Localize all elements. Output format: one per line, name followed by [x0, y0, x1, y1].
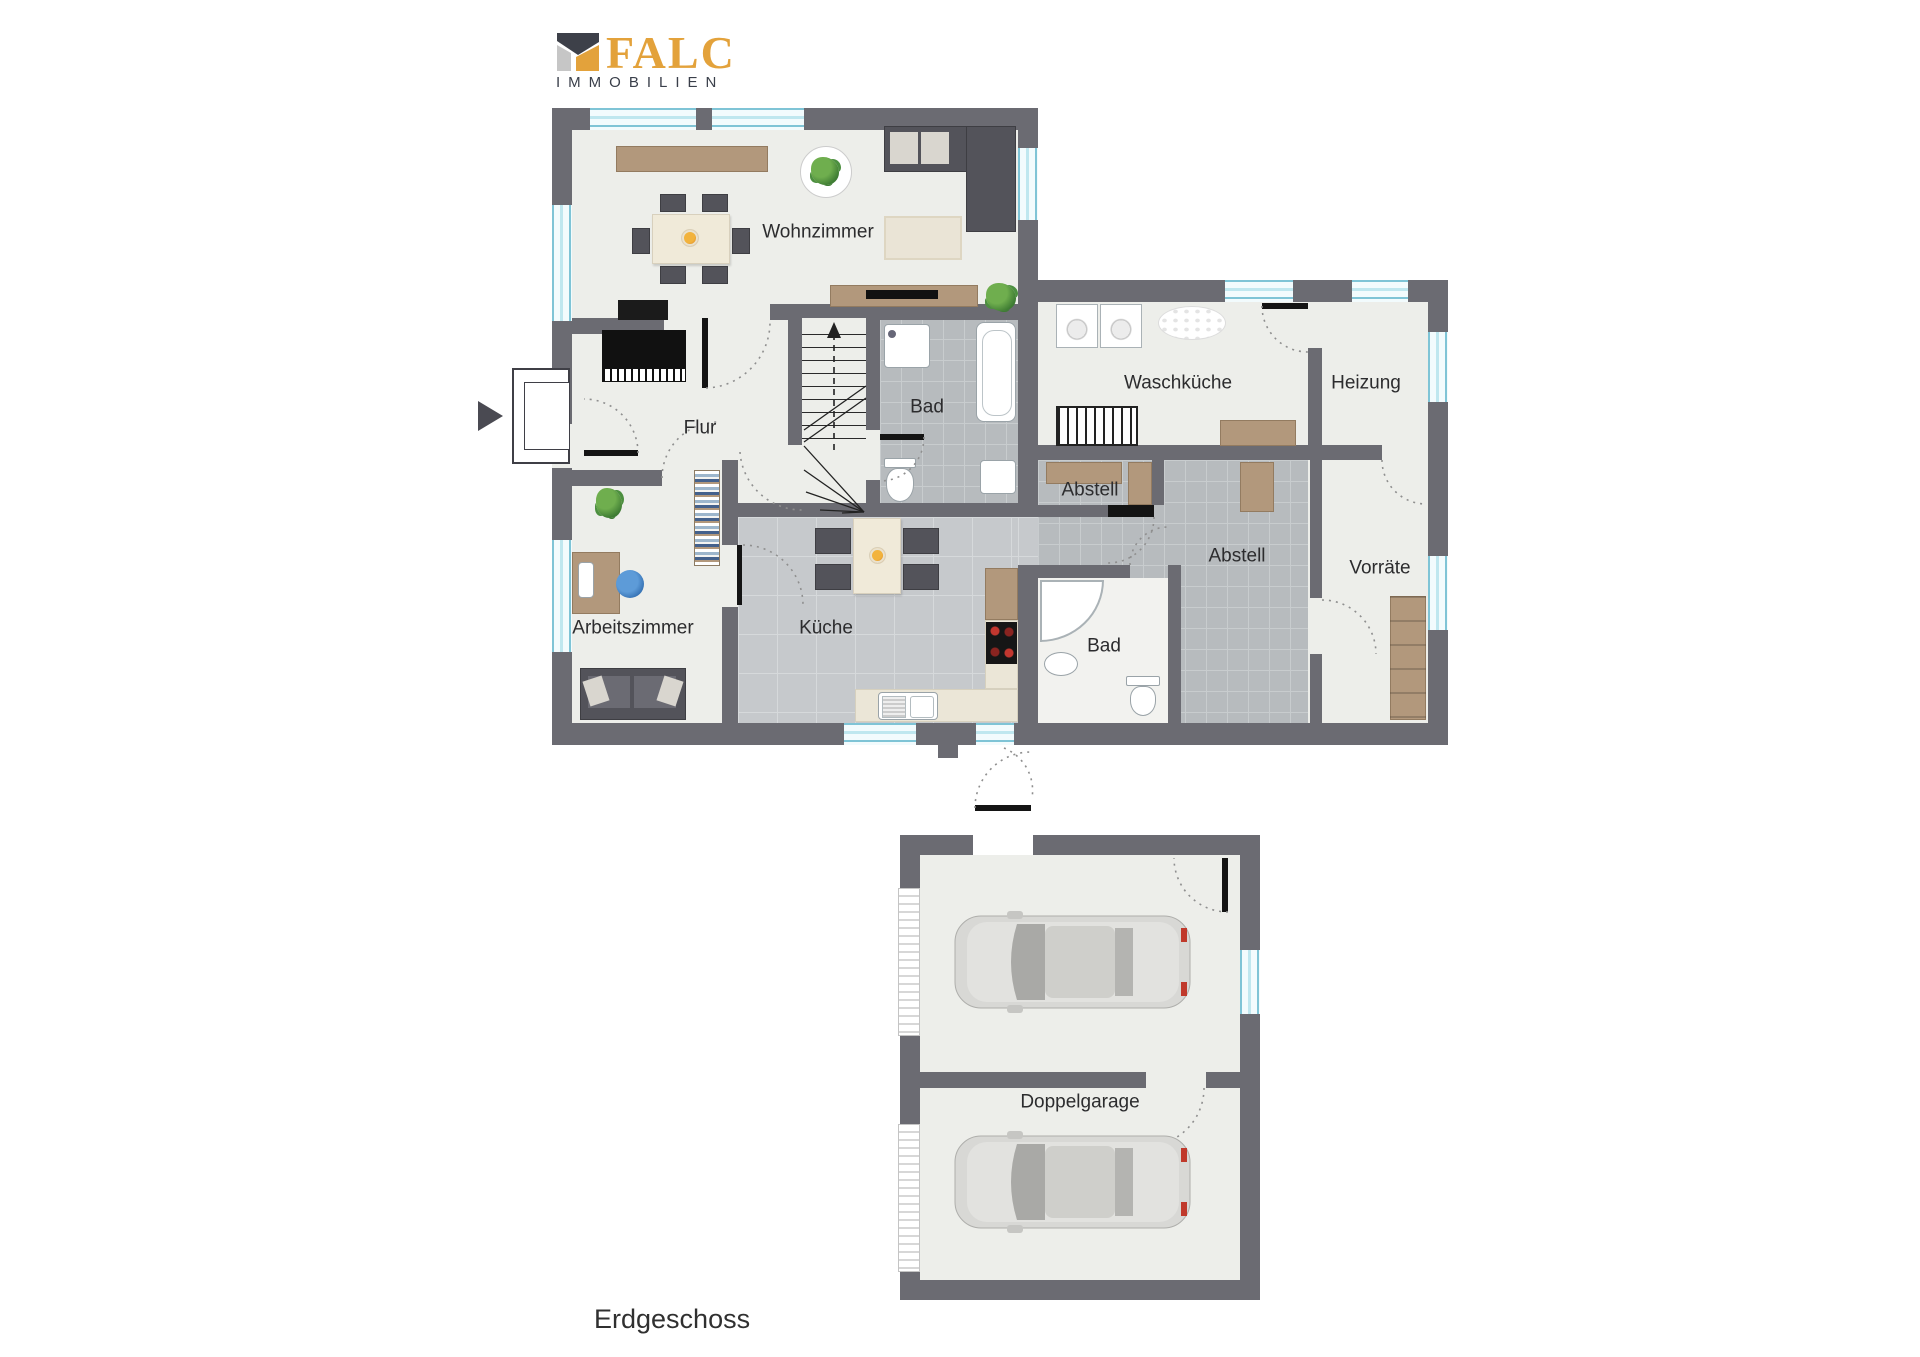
cabinet — [1240, 462, 1274, 512]
wall — [920, 1072, 1146, 1088]
storage-shelf — [1390, 596, 1426, 720]
garage-door — [898, 888, 920, 1036]
bookshelf — [694, 470, 720, 566]
office-chair — [616, 570, 644, 598]
entrance-porch-inner — [524, 382, 570, 450]
chair — [702, 266, 728, 284]
window — [1352, 280, 1408, 302]
window — [1428, 332, 1448, 402]
window — [1240, 950, 1260, 1014]
washbasin — [1044, 652, 1078, 676]
room-label-vorraete: Vorräte — [1349, 559, 1410, 578]
wall — [1308, 348, 1322, 445]
room-label-abstell-large: Abstell — [1208, 547, 1265, 566]
floor-plan-page: FALC IMMOBILIEN — [0, 0, 1920, 1357]
window — [590, 108, 696, 130]
wall — [1240, 1014, 1260, 1300]
wall — [900, 835, 920, 888]
window — [976, 723, 1014, 745]
sofa — [966, 126, 1016, 232]
desk-papers — [578, 562, 594, 598]
wall — [738, 503, 1038, 517]
floor-caption: Erdgeschoss — [594, 1304, 750, 1335]
chair — [903, 528, 939, 554]
room-label-abstell-small: Abstell — [1061, 481, 1118, 500]
garage-door — [898, 1124, 920, 1272]
sideboard — [616, 146, 768, 172]
wall — [1310, 460, 1322, 598]
room-label-kueche: Küche — [799, 619, 853, 638]
window — [552, 540, 572, 652]
piano — [602, 330, 686, 368]
plant-icon — [596, 488, 622, 518]
wall — [722, 607, 738, 723]
wall — [900, 1036, 920, 1124]
wall — [900, 1280, 1260, 1300]
wall — [788, 318, 802, 445]
wall — [866, 318, 880, 430]
chair — [815, 528, 851, 554]
wall — [938, 745, 958, 758]
chair — [815, 564, 851, 590]
bench — [1220, 420, 1296, 446]
wall — [1152, 460, 1164, 505]
toilet-tank — [884, 458, 916, 468]
piano-keys — [602, 368, 686, 382]
room-label-bad-top: Bad — [910, 398, 944, 417]
door — [1108, 505, 1154, 517]
chair — [903, 564, 939, 590]
sink-faucet — [888, 330, 896, 338]
garage-entry-door — [975, 805, 1031, 811]
window — [1428, 556, 1448, 630]
room-floor-corridor — [1018, 517, 1038, 565]
room-label-wohnzimmer: Wohnzimmer — [762, 223, 874, 242]
window — [552, 205, 572, 321]
wall — [1038, 445, 1382, 460]
stove — [986, 622, 1017, 664]
drying-rack — [1056, 406, 1138, 446]
brand-name: FALC — [606, 26, 736, 79]
washer-icon — [1056, 304, 1098, 348]
brand-subtitle: IMMOBILIEN — [556, 74, 724, 91]
wall — [1206, 1072, 1240, 1088]
kitchen-cabinet — [985, 568, 1018, 620]
window — [1225, 280, 1293, 302]
door — [1262, 303, 1308, 309]
room-label-waschkueche: Waschküche — [1124, 374, 1232, 393]
plant-icon — [986, 283, 1016, 311]
wall — [1018, 565, 1038, 745]
chair — [702, 194, 728, 212]
stairs — [802, 322, 866, 440]
dryer-icon — [1100, 304, 1142, 348]
chair — [660, 266, 686, 284]
plant-icon — [811, 157, 839, 185]
door — [737, 545, 742, 605]
window — [1018, 148, 1038, 220]
window — [712, 108, 804, 130]
chair — [632, 228, 650, 254]
entrance-arrow-icon — [478, 401, 503, 431]
wall — [1038, 565, 1130, 578]
toilet — [886, 468, 914, 502]
window — [844, 723, 916, 745]
washbasin — [980, 460, 1016, 494]
sink-basin — [910, 696, 934, 718]
tv — [866, 290, 938, 299]
cabinet — [1128, 462, 1152, 505]
toilet — [1130, 686, 1156, 716]
door — [880, 434, 924, 440]
fruit-bowl-icon — [870, 548, 885, 563]
rug — [884, 216, 962, 260]
room-label-bad-bottom: Bad — [1087, 637, 1121, 656]
room-label-doppelgarage: Doppelgarage — [1020, 1093, 1139, 1112]
sink-drainer — [882, 696, 906, 718]
sofa-cushion — [890, 132, 918, 164]
entrance-door — [584, 450, 638, 456]
room-floor-garage — [920, 855, 1240, 1280]
wall — [1240, 835, 1260, 950]
door — [1222, 858, 1228, 912]
wall — [1168, 565, 1181, 723]
piano-bench — [618, 300, 668, 320]
sofa-cushion — [921, 132, 949, 164]
door — [702, 318, 708, 388]
room-label-heizung: Heizung — [1331, 374, 1401, 393]
bathtub-inner — [982, 330, 1012, 416]
toilet-tank — [1126, 676, 1160, 686]
fruit-bowl-icon — [682, 230, 698, 246]
wall — [1038, 505, 1108, 517]
falc-logo-icon — [556, 32, 600, 72]
room-label-flur: Flur — [684, 419, 717, 438]
room-label-arbeitszimmer: Arbeitszimmer — [572, 619, 693, 638]
laundry-pile — [1158, 306, 1226, 340]
chair — [660, 194, 686, 212]
wall — [866, 480, 880, 517]
wall — [1033, 835, 1260, 855]
wall — [722, 460, 738, 545]
wall — [572, 470, 662, 486]
wall — [1310, 654, 1322, 723]
chair — [732, 228, 750, 254]
